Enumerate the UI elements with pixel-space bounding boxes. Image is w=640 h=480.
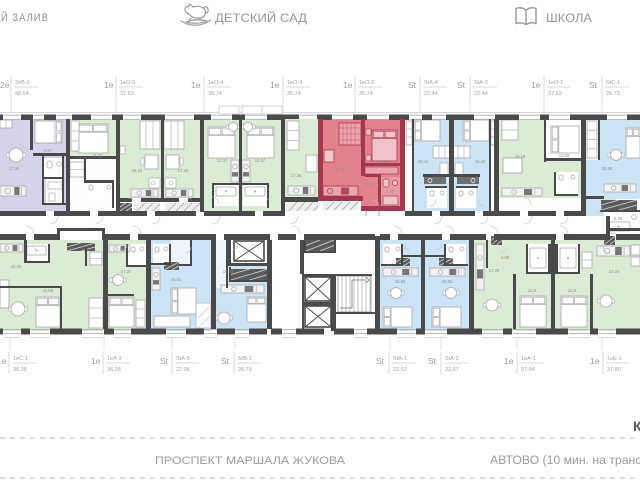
svg-text:1еА-2: 1еА-2 [107,356,122,362]
svg-text:1еО-3: 1еО-3 [287,80,302,86]
svg-text:1еО-5: 1еО-5 [120,80,135,86]
svg-text:22.44: 22.44 [474,91,488,97]
svg-text:22.44: 22.44 [424,91,438,97]
svg-text:1еС-1: 1еС-1 [13,356,28,362]
svg-text:1е: 1е [343,80,353,90]
svg-text:35.74: 35.74 [287,91,301,97]
svg-text:StA-5: StA-5 [176,356,190,362]
svg-text:20.28: 20.28 [602,166,613,171]
svg-text:9.93: 9.93 [94,153,103,158]
svg-text:2е: 2е [0,80,10,90]
svg-text:АВТОВО (10 мин. на трансп: АВТОВО (10 мин. на трансп [490,455,640,467]
svg-text:1е: 1е [504,356,514,366]
svg-text:35.74: 35.74 [208,91,222,97]
svg-text:3.75: 3.75 [614,216,623,221]
svg-text:1е: 1е [0,356,7,366]
svg-text:StB-1: StB-1 [238,356,252,362]
svg-text:1е: 1е [91,356,101,366]
svg-text:StA-2: StA-2 [445,356,459,362]
svg-text:9.97: 9.97 [44,148,53,153]
svg-text:1е: 1е [590,356,600,366]
svg-text:St: St [221,356,230,366]
svg-text:St: St [408,80,417,90]
svg-text:12.08: 12.08 [559,153,570,158]
svg-text:St: St [589,80,598,90]
svg-text:1е: 1е [191,80,201,90]
svg-text:17.35: 17.35 [291,173,302,178]
svg-text:48.64: 48.64 [15,91,29,97]
svg-text:22.52: 22.52 [393,367,407,373]
svg-text:17.37: 17.37 [121,269,132,274]
svg-text:37.84: 37.84 [521,367,535,373]
svg-text:1еА-1: 1еА-1 [521,356,536,362]
svg-text:1е: 1е [104,80,114,90]
svg-text:14.24: 14.24 [609,269,620,274]
svg-text:12.37: 12.37 [255,158,266,163]
svg-text:22.67: 22.67 [445,367,459,373]
svg-text:2еВ-1: 2еВ-1 [15,80,30,86]
svg-text:1еО-4: 1еО-4 [208,80,223,86]
svg-text:26.79: 26.79 [238,367,252,373]
svg-text:35.74: 35.74 [359,91,373,97]
svg-text:37.80: 37.80 [607,367,621,373]
svg-text:12.37: 12.37 [217,158,228,163]
svg-text:ПРОСПЕКТ МАРШАЛА ЖУКОВА: ПРОСПЕКТ МАРШАЛА ЖУКОВА [155,455,346,467]
svg-text:16.51: 16.51 [171,277,182,282]
svg-text:St: St [160,356,169,366]
svg-text:16.16: 16.16 [132,168,143,173]
svg-text:16.20: 16.20 [11,264,22,269]
svg-text:17.39: 17.39 [489,268,500,273]
svg-text:3.04: 3.04 [366,182,375,187]
svg-text:ДЕТСКИЙ САД: ДЕТСКИЙ САД [215,12,307,25]
svg-text:17.35: 17.35 [9,166,20,171]
svg-text:StA-4: StA-4 [424,80,438,86]
svg-text:11.58: 11.58 [43,288,54,293]
svg-text:15.44: 15.44 [475,159,486,164]
svg-text:36.35: 36.35 [13,367,27,373]
svg-text:StA-1: StA-1 [393,356,407,362]
svg-text:ШКОЛА: ШКОЛА [546,13,592,25]
svg-text:37.63: 37.63 [120,91,134,97]
svg-text:17.35: 17.35 [335,167,346,172]
svg-text:1е: 1е [531,80,541,90]
svg-text:36.28: 36.28 [107,367,121,373]
svg-text:12.32: 12.32 [377,159,388,164]
svg-text:4.89: 4.89 [501,255,510,260]
svg-text:1еО-1: 1еО-1 [548,80,563,86]
svg-text:17.33: 17.33 [178,168,189,173]
svg-text:2.73: 2.73 [386,189,395,194]
svg-text:1еЕ-1: 1еЕ-1 [607,356,622,362]
svg-text:15.83: 15.83 [442,279,453,284]
svg-text:26.73: 26.73 [606,91,620,97]
svg-text:18.18: 18.18 [515,154,526,159]
svg-text:St: St [376,356,385,366]
svg-text:12.9: 12.9 [568,288,577,293]
svg-text:15.83: 15.83 [395,279,406,284]
svg-text:37.62: 37.62 [548,91,562,97]
svg-text:StC-1: StC-1 [606,80,620,86]
svg-text:StA-3: StA-3 [474,80,488,86]
svg-text:22.06: 22.06 [176,367,190,373]
svg-text:18.44: 18.44 [223,269,234,274]
svg-text:1еО-2: 1еО-2 [359,80,374,86]
svg-text:К: К [633,418,640,434]
svg-text:12.9: 12.9 [528,288,537,293]
svg-text:15.44: 15.44 [418,159,429,164]
svg-text:St: St [457,80,466,90]
svg-text:Й ЗАЛИВ: Й ЗАЛИВ [1,11,49,24]
svg-text:St: St [428,356,437,366]
svg-text:1е: 1е [270,80,280,90]
